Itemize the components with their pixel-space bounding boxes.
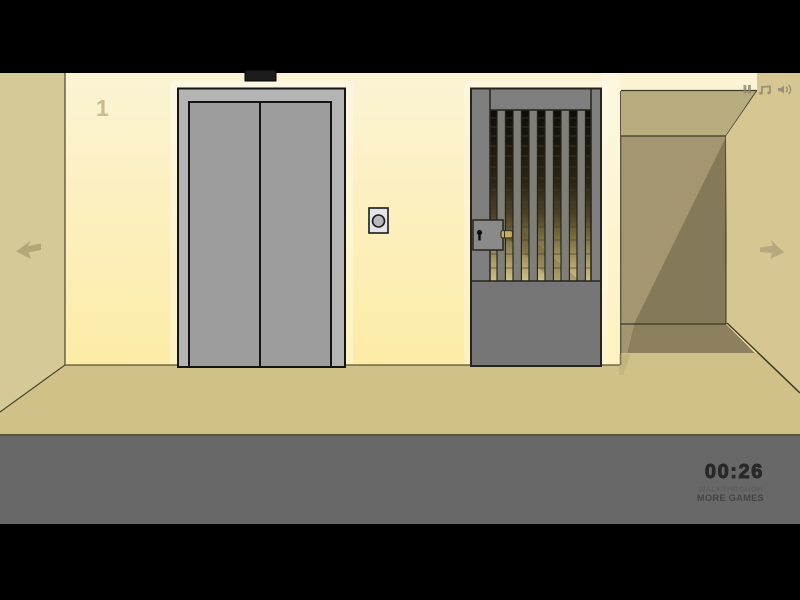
svg-text:MORE GAMES: MORE GAMES: [697, 492, 764, 503]
svg-text:1: 1: [96, 95, 109, 121]
svg-text:00:26: 00:26: [705, 461, 764, 483]
